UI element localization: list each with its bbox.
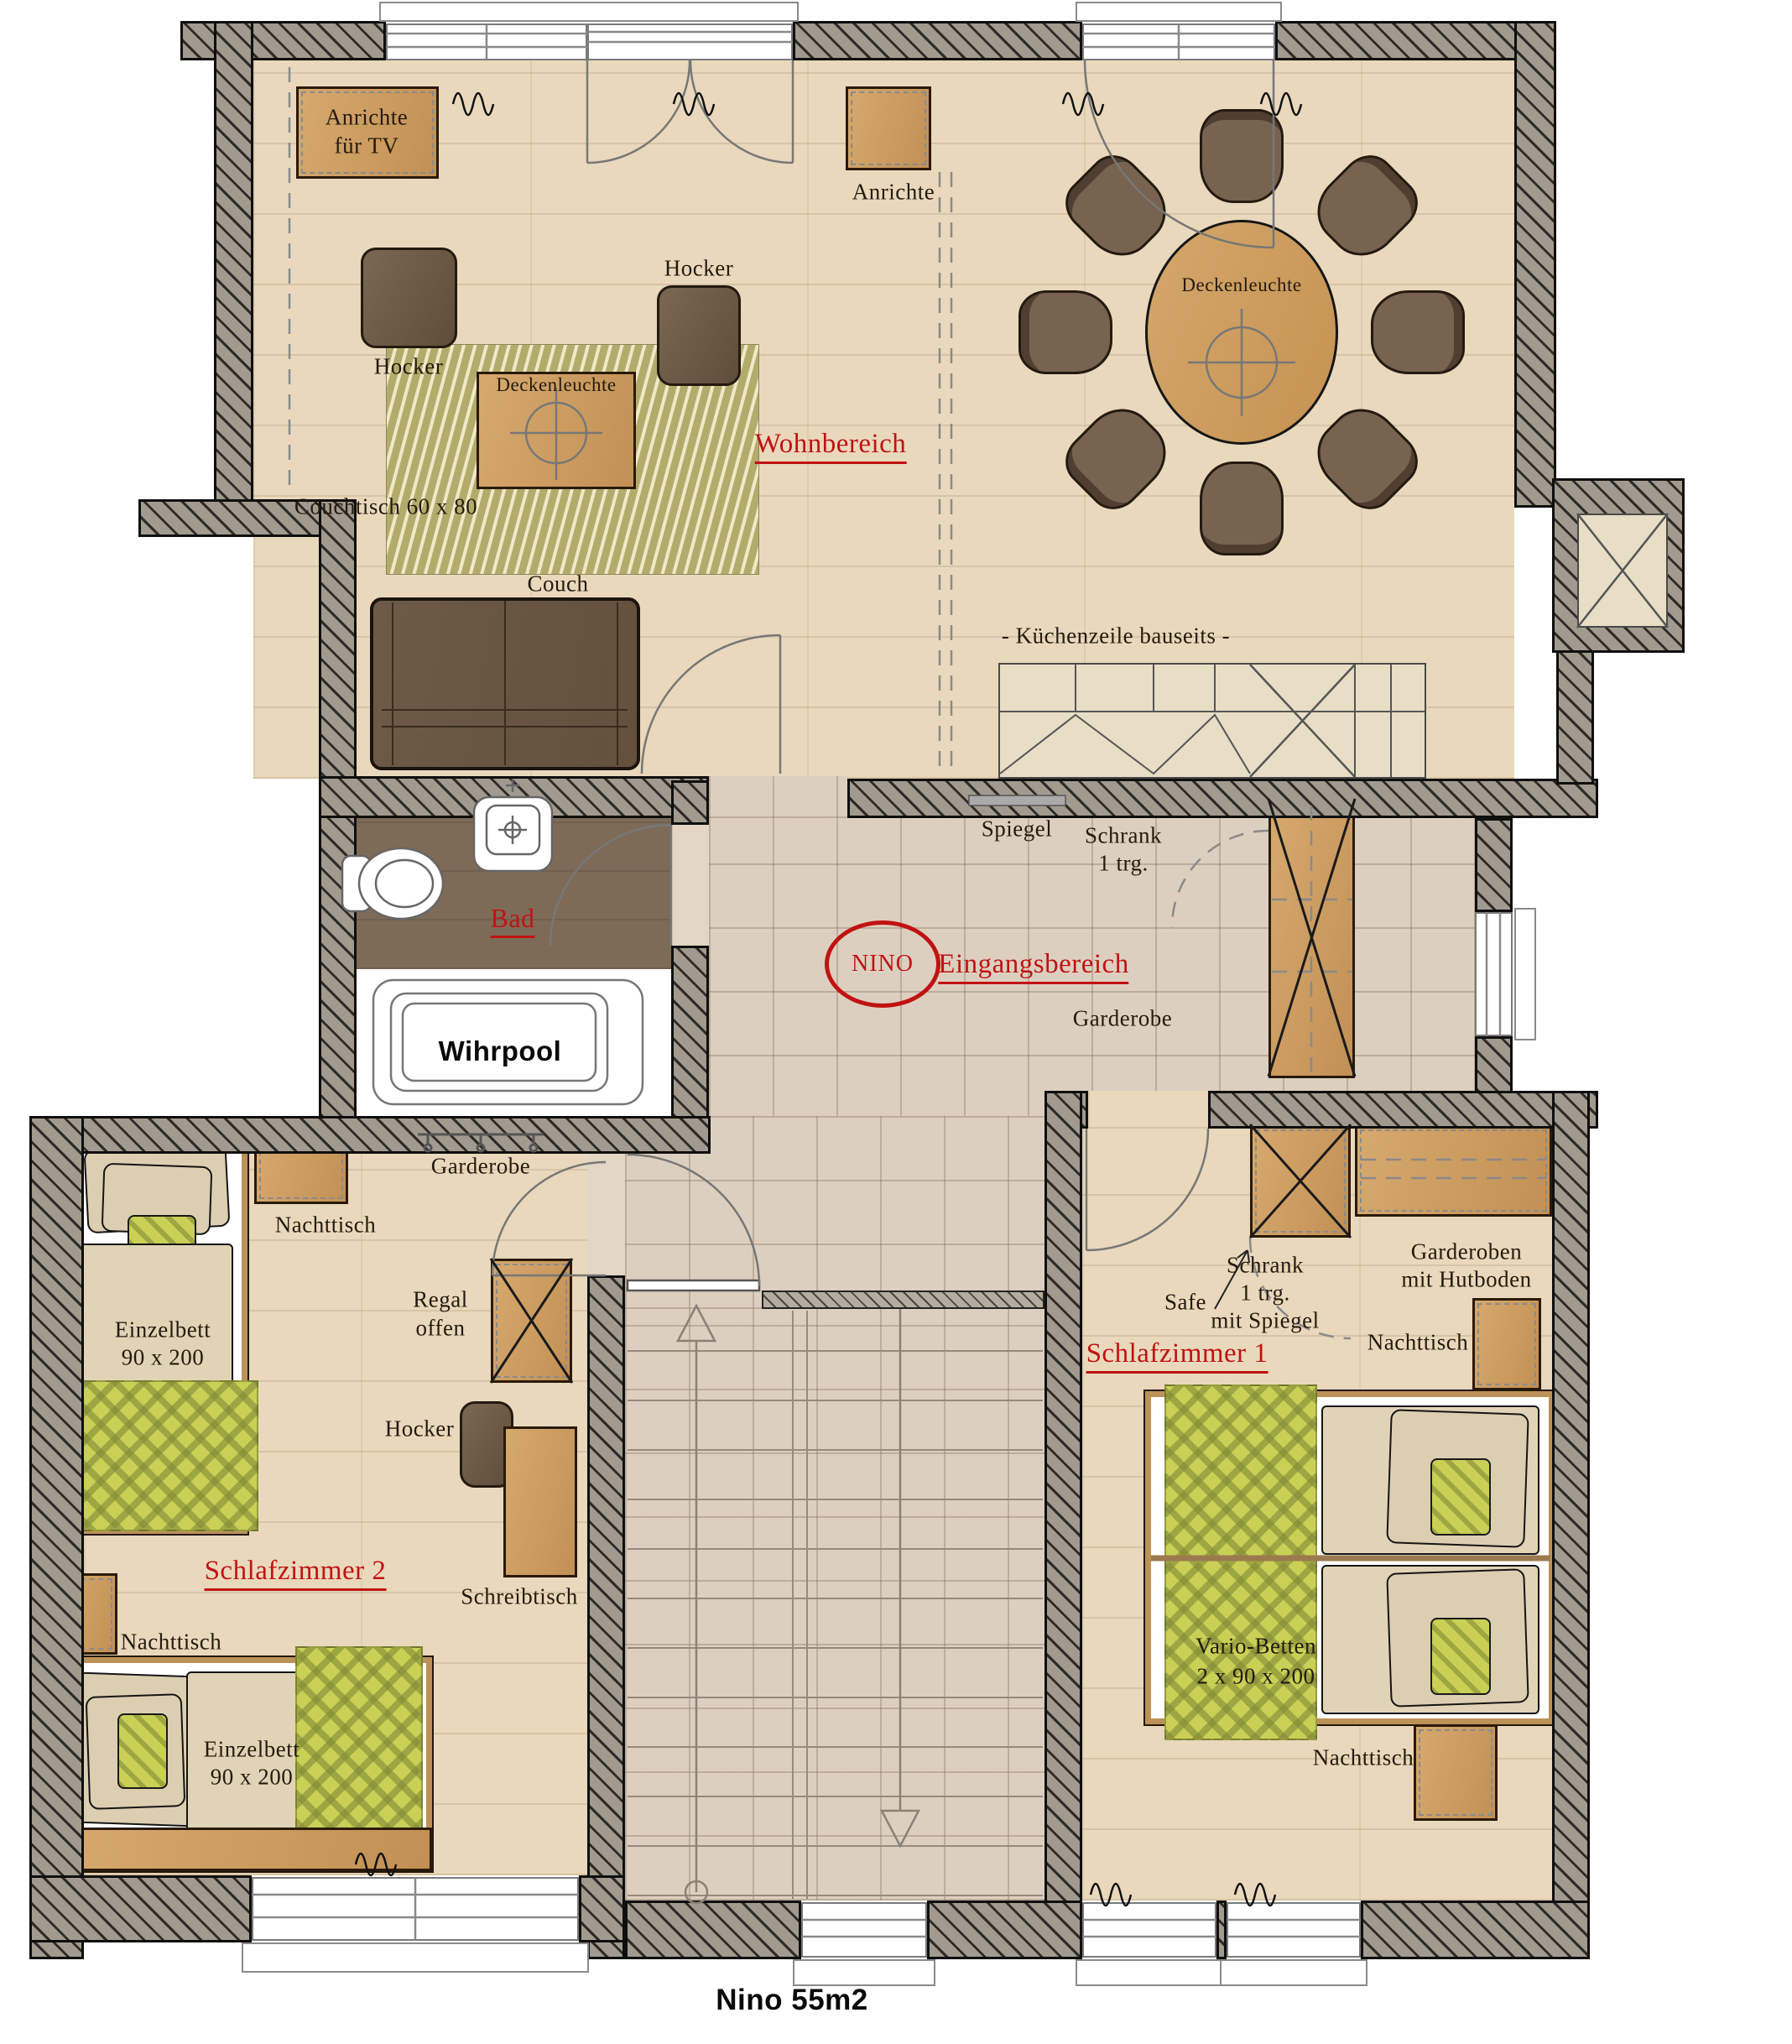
label-desk: Schreibtisch xyxy=(461,1584,577,1610)
label-single-bed: Einzelbett xyxy=(115,1317,211,1343)
label-wardrobe-mirror: 1 trg. xyxy=(1240,1280,1290,1306)
label-nightstand: Nachttisch xyxy=(1313,1745,1414,1771)
label-single-bed: Einzelbett xyxy=(204,1737,300,1763)
nino-badge: NINO xyxy=(825,920,940,1008)
label-stool: Hocker xyxy=(385,1416,454,1442)
label-stool: Hocker xyxy=(374,354,443,380)
label-room-living: Wohnbereich xyxy=(755,429,907,464)
label-room-bedroom1: Schlafzimmer 1 xyxy=(1086,1338,1268,1374)
label-open-shelf: Regal xyxy=(413,1287,467,1313)
label-cabinet-1door: Schrank xyxy=(1085,823,1162,849)
kitchen-cabinet-lines xyxy=(1000,665,1425,777)
label-coat-hooks: Garderobe xyxy=(431,1154,530,1180)
label-nightstand: Nachttisch xyxy=(1367,1330,1468,1356)
label-wardrobe-mirror: Schrank xyxy=(1227,1253,1304,1279)
stair-treads xyxy=(628,1311,1043,1899)
toilet-icon xyxy=(342,848,443,919)
label-sideboard-tv: für TV xyxy=(335,133,399,159)
plan-title: Nino 55m2 xyxy=(716,1984,868,2017)
label-room-entrance: Eingangsbereich xyxy=(938,949,1128,984)
label-whirlpool: Wihrpool xyxy=(439,1035,562,1067)
coat-hooks-icon xyxy=(418,1134,544,1151)
label-stool: Hocker xyxy=(664,256,733,282)
label-vario-beds: 2 x 90 x 200 xyxy=(1197,1664,1315,1690)
label-ceiling-light: Deckenleuchte xyxy=(1181,274,1301,296)
label-coffee-table: Couchtisch 60 x 80 xyxy=(294,494,477,520)
label-wardrobe: Garderobe xyxy=(1073,1006,1172,1032)
label-vario-beds: Vario-Betten xyxy=(1196,1634,1316,1660)
label-mirror: Spiegel xyxy=(982,816,1053,842)
label-nightstand: Nachttisch xyxy=(275,1212,376,1238)
label-room-bedroom2: Schlafzimmer 2 xyxy=(205,1556,387,1591)
label-room-bath: Bad xyxy=(490,903,534,938)
label-coat-rack: mit Hutboden xyxy=(1401,1267,1531,1293)
label-single-bed: 90 x 200 xyxy=(122,1345,205,1371)
label-ceiling-light: Deckenleuchte xyxy=(496,374,616,396)
label-safe: Safe xyxy=(1164,1290,1206,1316)
label-sideboard-tv: Anrichte xyxy=(326,105,408,131)
label-nino: NINO xyxy=(852,951,914,978)
label-wardrobe-mirror: mit Spiegel xyxy=(1211,1308,1319,1334)
label-open-shelf: offen xyxy=(416,1316,466,1342)
label-nightstand: Nachttisch xyxy=(121,1629,221,1656)
floor-plan: Anrichte für TV Hocker Hocker Deckenleuc… xyxy=(0,0,1792,2044)
label-cabinet-1door: 1 trg. xyxy=(1098,851,1149,877)
sink-icon xyxy=(474,779,552,871)
label-sideboard: Anrichte xyxy=(852,180,935,206)
label-coat-rack: Garderoben xyxy=(1411,1239,1522,1265)
stair-direction-arrows xyxy=(678,1306,919,1903)
mirror-icon xyxy=(969,795,1065,806)
door-swing-icon xyxy=(492,59,1274,1291)
label-single-bed: 90 x 200 xyxy=(211,1765,294,1791)
couch-seams xyxy=(382,601,628,765)
label-kitchen: - Küchenzeile bauseits - xyxy=(1002,623,1230,649)
label-couch: Couch xyxy=(528,571,589,597)
shaft-x-icon xyxy=(1250,514,1668,777)
